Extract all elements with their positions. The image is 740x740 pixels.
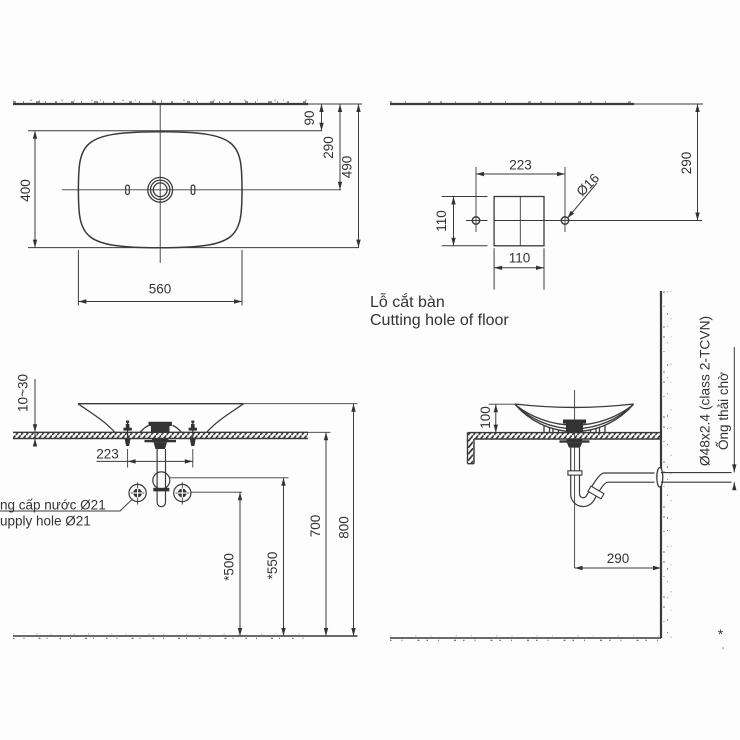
svg-text:10~30: 10~30 bbox=[16, 374, 31, 412]
svg-text:800: 800 bbox=[336, 516, 351, 539]
svg-text:110: 110 bbox=[434, 210, 449, 232]
svg-text:290: 290 bbox=[679, 152, 694, 175]
svg-text:90: 90 bbox=[302, 110, 317, 125]
svg-text:*550: *550 bbox=[265, 552, 280, 580]
svg-text:Cutting hole of floor: Cutting hole of floor bbox=[370, 312, 509, 329]
svg-text:*: * bbox=[718, 626, 724, 642]
svg-text:Lỗ cắt bàn: Lỗ cắt bàn bbox=[370, 292, 445, 311]
svg-text:upply hole Ø21: upply hole Ø21 bbox=[0, 514, 91, 529]
svg-text:Ống thải chờ: Ống thải chờ bbox=[716, 372, 731, 450]
svg-text:Ø48x2.4 (class 2-TCVN): Ø48x2.4 (class 2-TCVN) bbox=[698, 316, 713, 466]
svg-text:290: 290 bbox=[607, 551, 630, 566]
svg-text:223: 223 bbox=[96, 446, 119, 461]
svg-text:Ø16: Ø16 bbox=[573, 170, 602, 199]
svg-text:560: 560 bbox=[149, 282, 172, 297]
svg-text:700: 700 bbox=[308, 515, 323, 538]
svg-text:100: 100 bbox=[478, 406, 493, 429]
svg-text:290: 290 bbox=[321, 136, 336, 159]
svg-text:110: 110 bbox=[509, 251, 531, 266]
svg-text:223: 223 bbox=[509, 158, 532, 173]
svg-text:ng cấp nước Ø21: ng cấp nước Ø21 bbox=[0, 498, 106, 513]
svg-text:490: 490 bbox=[340, 156, 355, 179]
svg-text:400: 400 bbox=[18, 179, 33, 202]
svg-text:*500: *500 bbox=[222, 553, 237, 581]
